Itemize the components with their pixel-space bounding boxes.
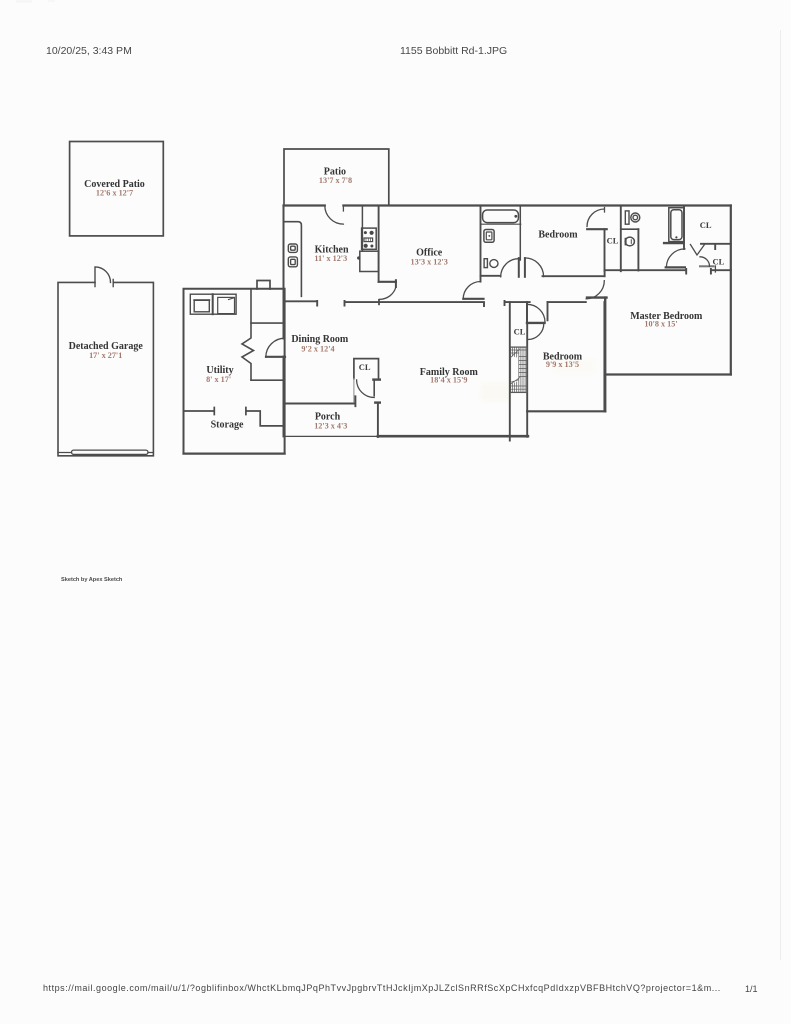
svg-text:CL: CL (359, 362, 371, 372)
svg-text:12'6 x 12'7: 12'6 x 12'7 (96, 189, 133, 198)
svg-text:CL: CL (607, 235, 619, 245)
svg-text:13'3 x 12'3: 13'3 x 12'3 (411, 257, 448, 266)
svg-text:Dining Room: Dining Room (291, 334, 349, 345)
svg-text:9'9 x 13'5: 9'9 x 13'5 (546, 360, 579, 369)
svg-text:17' x 27'1: 17' x 27'1 (89, 351, 122, 360)
svg-text:18'4 x 15'9: 18'4 x 15'9 (430, 376, 467, 385)
svg-text:8' x 17': 8' x 17' (206, 375, 231, 384)
svg-text:CL: CL (712, 257, 724, 267)
svg-text:CL: CL (514, 327, 526, 337)
svg-text:Storage: Storage (211, 420, 244, 431)
svg-text:CL: CL (700, 220, 712, 230)
svg-text:11' x 12'3: 11' x 12'3 (314, 254, 347, 263)
svg-text:9'2 x 12'4: 9'2 x 12'4 (301, 345, 334, 354)
svg-text:Bedroom: Bedroom (538, 230, 578, 241)
svg-text:13'7 x 7'8: 13'7 x 7'8 (319, 176, 352, 185)
svg-text:12'3 x 4'3: 12'3 x 4'3 (314, 422, 347, 431)
svg-text:10'8 x 15': 10'8 x 15' (644, 320, 677, 329)
